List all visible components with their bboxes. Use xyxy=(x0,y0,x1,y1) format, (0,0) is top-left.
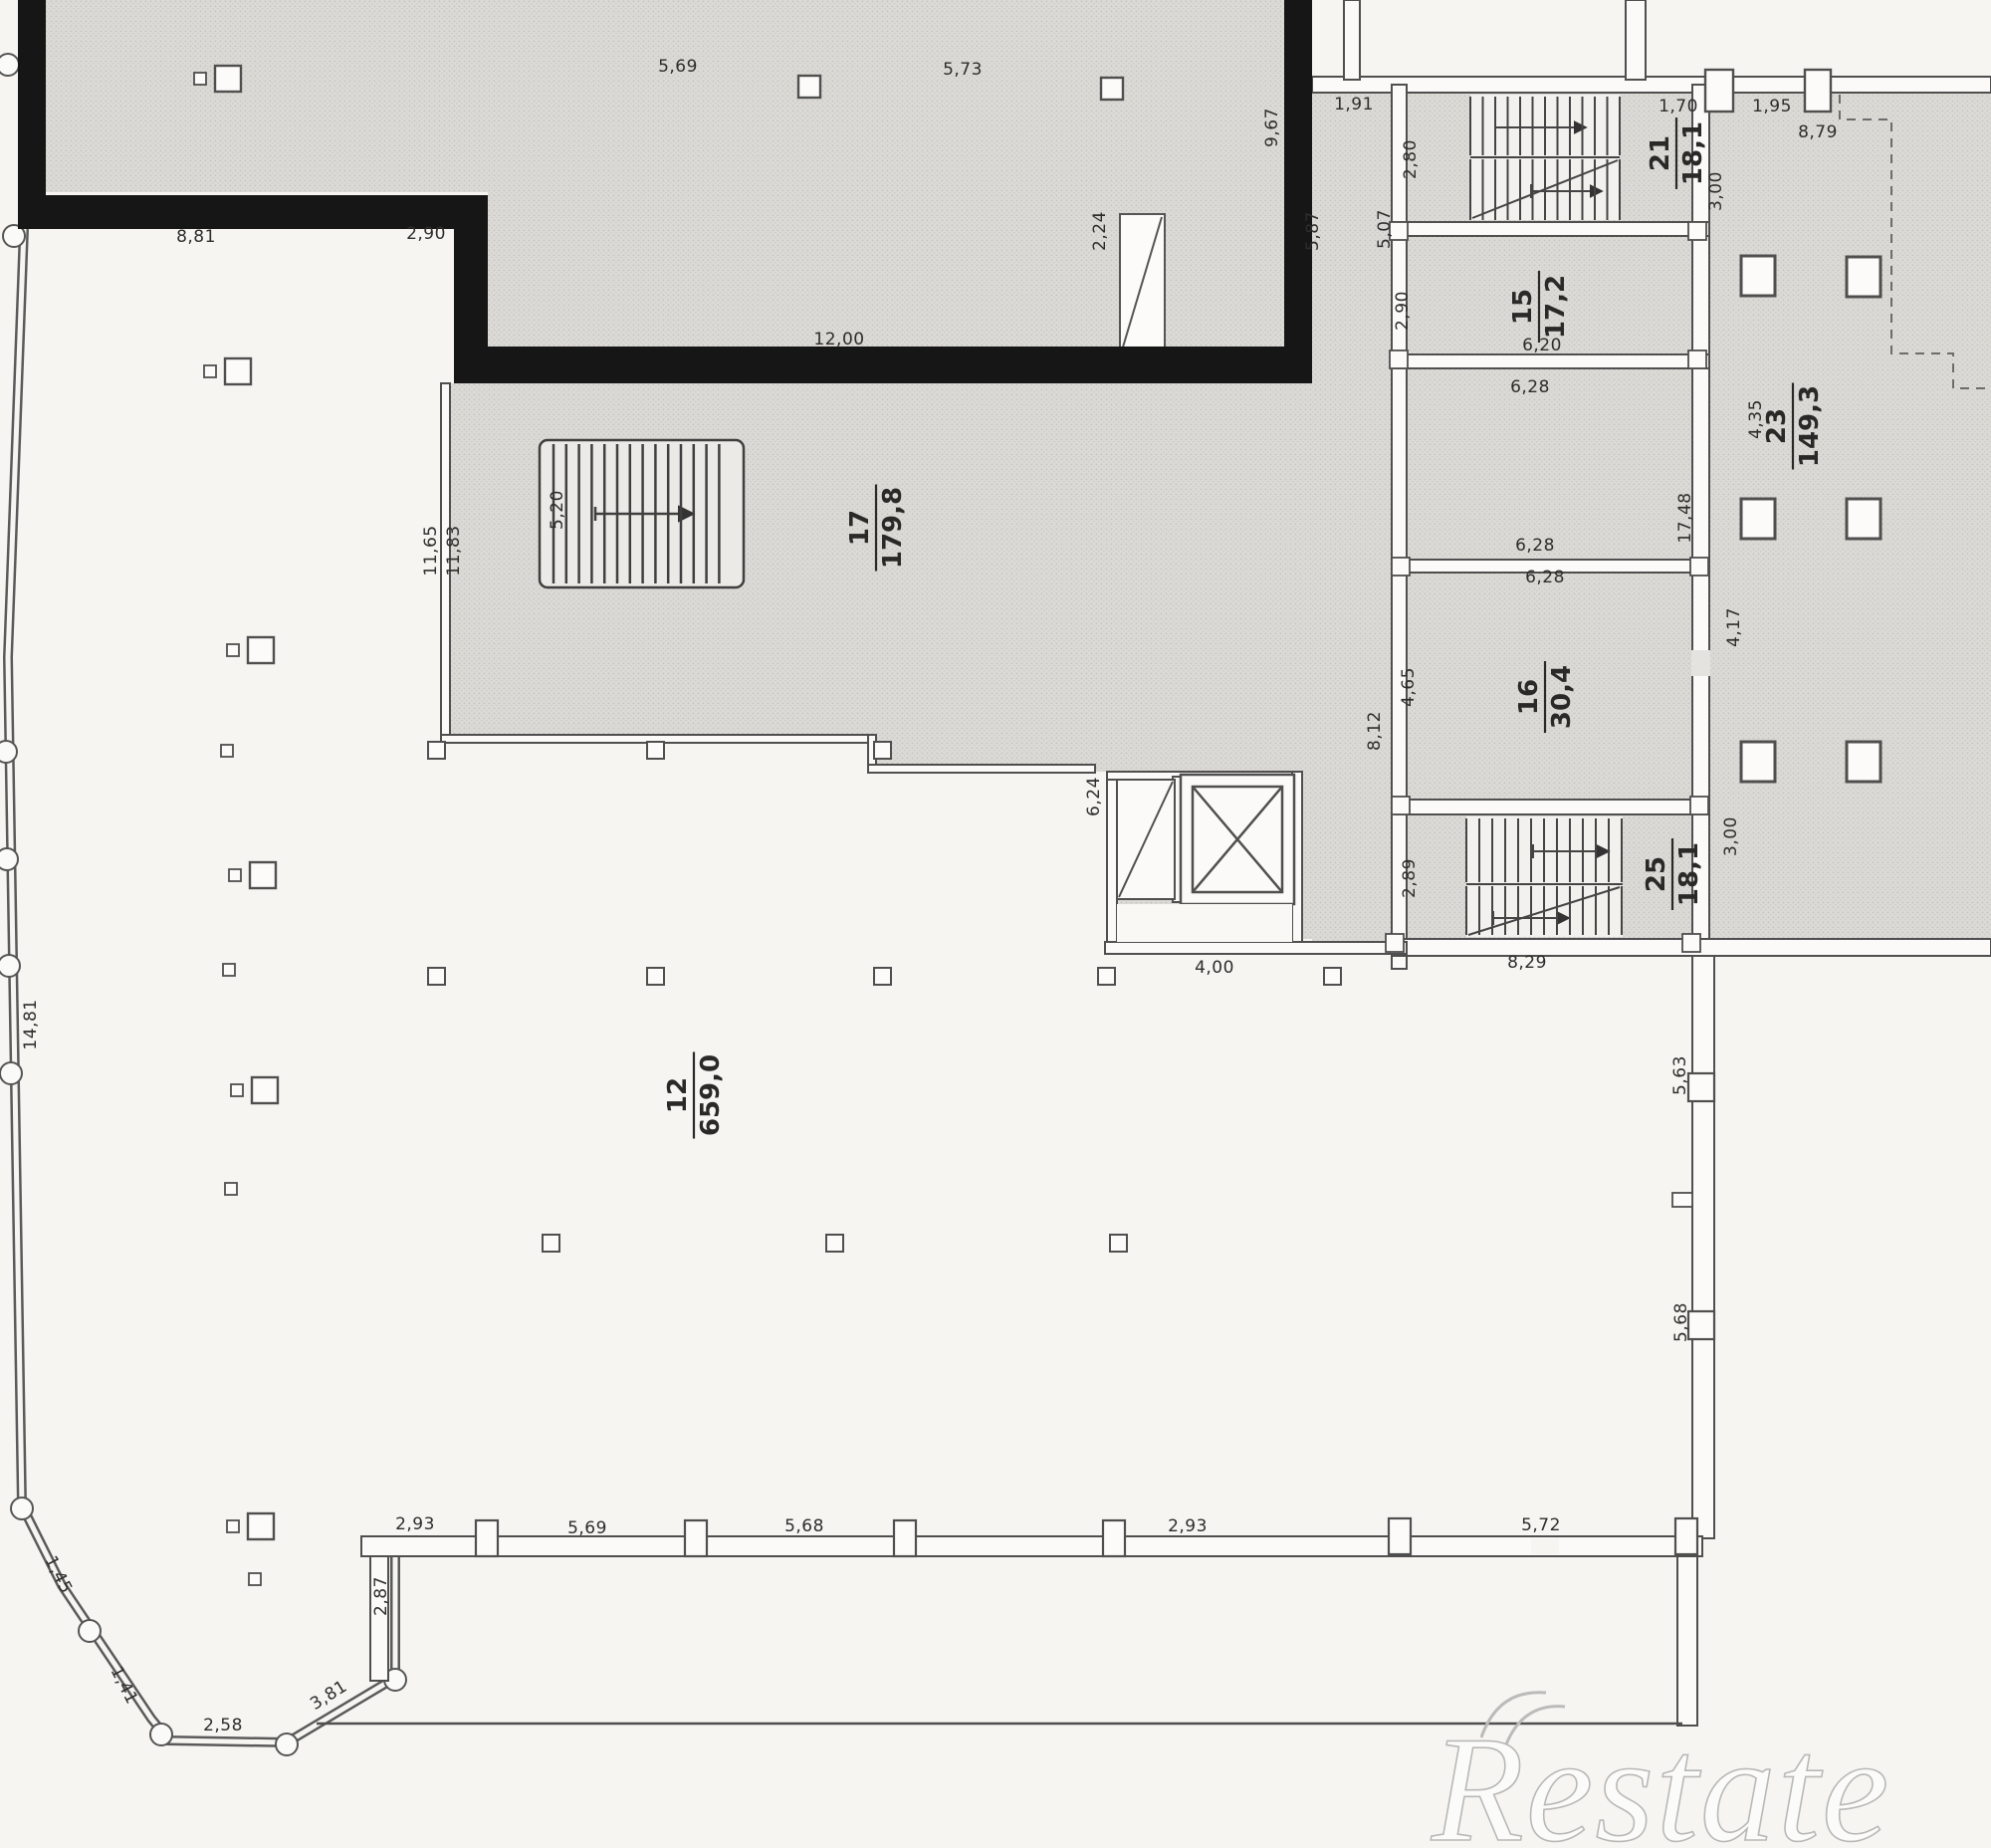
column xyxy=(229,869,241,881)
column xyxy=(894,1520,916,1556)
dimension-label: 2,58 xyxy=(203,1716,243,1735)
dimension-label: 5,07 xyxy=(1375,209,1395,249)
wall-opening xyxy=(1531,1538,1559,1554)
dimension-label: 11,65 xyxy=(421,525,441,576)
room-area: 30,4 xyxy=(1547,665,1577,729)
dimension-label: 5,69 xyxy=(567,1518,607,1538)
column xyxy=(1672,1193,1692,1207)
column xyxy=(204,365,216,377)
column xyxy=(1675,1518,1697,1554)
dimension-label: 2,90 xyxy=(406,224,446,244)
dimension-label: 5,87 xyxy=(1303,211,1323,251)
dimension-label: 5,73 xyxy=(943,60,983,80)
dimension-label: 11,83 xyxy=(444,525,464,576)
column xyxy=(647,968,664,985)
room-area: 17,2 xyxy=(1541,275,1571,339)
column xyxy=(1110,1235,1127,1252)
dimension-label: 8,79 xyxy=(1798,122,1838,142)
stairs-25 xyxy=(1466,816,1623,937)
dimension-label: 6,24 xyxy=(1084,777,1104,816)
dimension-label: 8,12 xyxy=(1365,711,1385,751)
watermark-text: Restate xyxy=(1431,1706,1890,1848)
dimension-label: 8,81 xyxy=(176,227,216,247)
dimension-label: 4,17 xyxy=(1724,607,1744,647)
floor-plan-page: 8,812,905,695,7312,002,249,675,871,912,8… xyxy=(0,0,1991,1848)
dimension-label: 3,00 xyxy=(1721,816,1741,856)
room-number: 12 xyxy=(663,1077,693,1113)
room-number: 17 xyxy=(845,510,875,546)
column xyxy=(428,742,445,759)
column xyxy=(1688,350,1706,368)
column xyxy=(1103,1520,1125,1556)
column xyxy=(194,73,206,85)
column xyxy=(1847,499,1880,539)
column xyxy=(1741,499,1775,539)
dimension-label: 2,89 xyxy=(1400,858,1420,898)
dimension-label: 4,65 xyxy=(1399,667,1419,707)
column xyxy=(225,1183,237,1195)
room-area: 149,3 xyxy=(1795,385,1825,467)
dimension-label: 12,00 xyxy=(813,330,864,349)
stairs-room17 xyxy=(540,440,744,587)
column xyxy=(428,968,445,985)
dimension-label: 6,28 xyxy=(1510,377,1550,397)
room-number: 15 xyxy=(1508,289,1538,325)
dimension-label: 5,72 xyxy=(1521,1515,1561,1535)
column xyxy=(1741,742,1775,782)
room-area: 179,8 xyxy=(878,487,908,569)
dimension-label: 2,80 xyxy=(1401,139,1421,179)
column xyxy=(647,742,664,759)
column xyxy=(874,968,891,985)
dimension-label: 2,90 xyxy=(1393,291,1413,331)
dimension-label: 2,93 xyxy=(1168,1516,1208,1536)
dimension-label: 6,28 xyxy=(1515,536,1555,556)
column xyxy=(1847,257,1880,297)
floor-plan-drawing: 8,812,905,695,7312,002,249,675,871,912,8… xyxy=(0,0,1991,1848)
column xyxy=(798,76,820,98)
dimension-label: 1,70 xyxy=(1659,97,1698,116)
column xyxy=(221,745,233,757)
column xyxy=(476,1520,498,1556)
column xyxy=(1690,797,1708,814)
dimension-label: 2,93 xyxy=(395,1514,435,1534)
dimension-label: 9,67 xyxy=(1262,108,1282,147)
column xyxy=(1682,934,1700,952)
column xyxy=(248,637,274,663)
column xyxy=(874,742,891,759)
column xyxy=(225,358,251,384)
elevator-shaft xyxy=(1117,775,1294,942)
dimension-label: 1,91 xyxy=(1334,95,1374,115)
stairs-21 xyxy=(1470,95,1620,220)
room-number: 16 xyxy=(1514,679,1544,715)
column xyxy=(250,862,276,888)
room-number: 21 xyxy=(1646,135,1675,171)
dimension-label: 5,69 xyxy=(658,57,698,77)
dimension-label: 14,81 xyxy=(21,999,41,1049)
column xyxy=(543,1235,559,1252)
room-area: 18,1 xyxy=(1678,121,1708,185)
column xyxy=(1101,78,1123,100)
column xyxy=(685,1520,707,1556)
column xyxy=(1688,222,1706,240)
column xyxy=(1392,558,1410,576)
dimension-label: 1,95 xyxy=(1752,97,1792,116)
room-number: 23 xyxy=(1762,408,1792,444)
dimension-label: 5,20 xyxy=(548,490,567,530)
column xyxy=(826,1235,843,1252)
dimension-label: 2,87 xyxy=(371,1576,391,1616)
column xyxy=(1390,350,1408,368)
column xyxy=(1805,70,1831,112)
column xyxy=(1392,797,1410,814)
room-area: 659,0 xyxy=(696,1054,726,1136)
column xyxy=(231,1084,243,1096)
dimension-label: 6,28 xyxy=(1525,568,1565,587)
column xyxy=(227,1520,239,1532)
column xyxy=(215,66,241,92)
column xyxy=(1847,742,1880,782)
column xyxy=(1741,256,1775,296)
column xyxy=(248,1513,274,1539)
dimension-label: 5,63 xyxy=(1670,1055,1690,1095)
column xyxy=(1098,968,1115,985)
dimension-label: 5,68 xyxy=(1671,1302,1691,1342)
room-number: 25 xyxy=(1642,856,1671,892)
dimension-label: 8,29 xyxy=(1507,953,1547,973)
column xyxy=(1688,1073,1714,1101)
dimension-label: 17,48 xyxy=(1675,492,1695,543)
column xyxy=(1389,1518,1411,1554)
dimension-label: 3,00 xyxy=(1706,171,1726,211)
column xyxy=(1386,934,1404,952)
dimension-label: 5,68 xyxy=(784,1516,824,1536)
column xyxy=(252,1077,278,1103)
column xyxy=(249,1573,261,1585)
dimension-label: 4,00 xyxy=(1195,958,1234,978)
room-area: 18,1 xyxy=(1674,842,1704,906)
column xyxy=(223,964,235,976)
column xyxy=(1688,1311,1714,1339)
watermark: Restate xyxy=(1431,1693,1890,1848)
column xyxy=(1324,968,1341,985)
column xyxy=(1690,558,1708,576)
door-opening xyxy=(1691,650,1710,676)
column xyxy=(1705,70,1733,112)
door-leaf xyxy=(1120,214,1165,353)
dimension-label: 2,24 xyxy=(1090,211,1110,251)
column xyxy=(227,644,239,656)
